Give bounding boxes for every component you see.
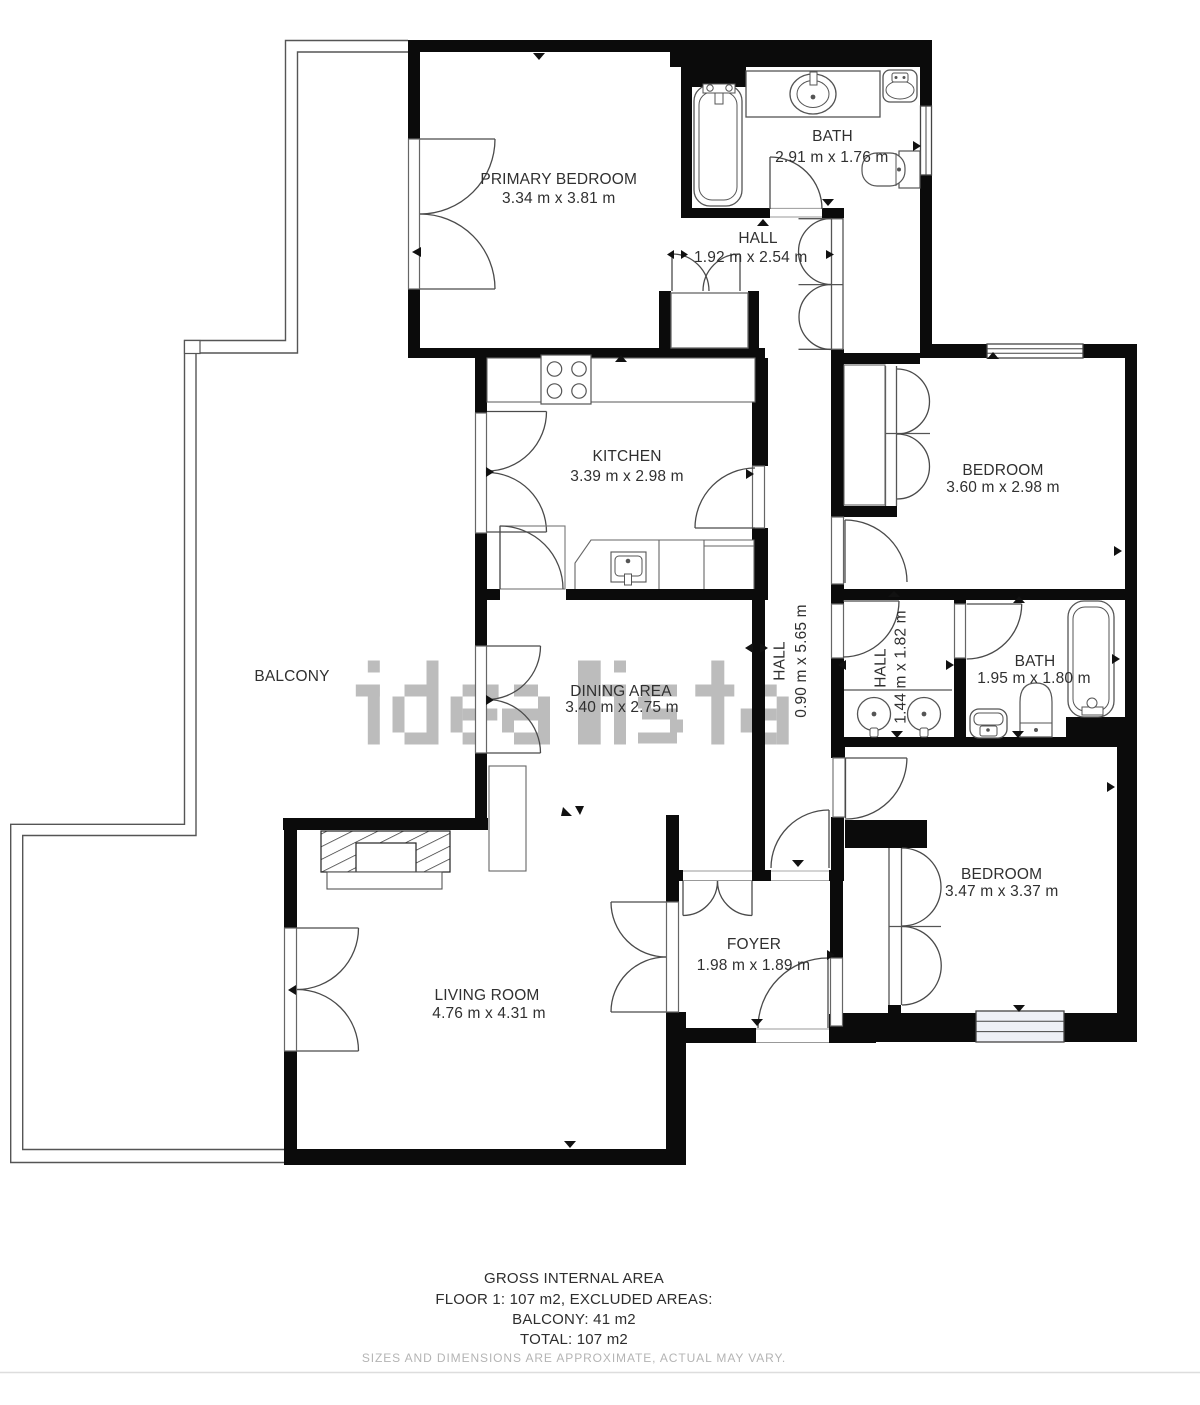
svg-text:3.34 m x 3.81 m: 3.34 m x 3.81 m bbox=[502, 190, 615, 207]
svg-text:HALL: HALL bbox=[873, 648, 890, 688]
svg-text:BEDROOM: BEDROOM bbox=[962, 462, 1043, 479]
svg-text:3.60 m x 2.98 m: 3.60 m x 2.98 m bbox=[946, 479, 1059, 496]
svg-text:3.40 m x 2.75 m: 3.40 m x 2.75 m bbox=[565, 699, 678, 716]
svg-text:BEDROOM: BEDROOM bbox=[961, 866, 1042, 883]
svg-text:1.98 m x 1.89 m: 1.98 m x 1.89 m bbox=[697, 957, 810, 974]
svg-text:PRIMARY BEDROOM: PRIMARY BEDROOM bbox=[480, 171, 637, 188]
svg-text:BALCONY: BALCONY bbox=[254, 668, 329, 685]
svg-text:1.92 m x 2.54 m: 1.92 m x 2.54 m bbox=[694, 249, 807, 266]
svg-text:0.90 m x 5.65 m: 0.90 m x 5.65 m bbox=[793, 604, 810, 717]
svg-text:LIVING ROOM: LIVING ROOM bbox=[435, 987, 540, 1004]
svg-text:HALL: HALL bbox=[772, 641, 789, 681]
svg-text:FLOOR 1: 107 m2, EXCLUDED AREA: FLOOR 1: 107 m2, EXCLUDED AREAS: bbox=[435, 1291, 712, 1308]
svg-text:BALCONY: 41 m2: BALCONY: 41 m2 bbox=[512, 1311, 636, 1328]
svg-text:3.39 m x 2.98 m: 3.39 m x 2.98 m bbox=[570, 468, 683, 485]
svg-text:TOTAL: 107 m2: TOTAL: 107 m2 bbox=[520, 1331, 628, 1348]
svg-text:BATH: BATH bbox=[1015, 653, 1056, 670]
svg-text:1.44 m x 1.82 m: 1.44 m x 1.82 m bbox=[893, 610, 910, 723]
svg-text:3.47 m x 3.37 m: 3.47 m x 3.37 m bbox=[945, 883, 1058, 900]
svg-text:1.95 m x 1.80 m: 1.95 m x 1.80 m bbox=[977, 670, 1090, 687]
svg-text:HALL: HALL bbox=[738, 230, 778, 247]
svg-text:BATH: BATH bbox=[812, 128, 853, 145]
svg-text:KITCHEN: KITCHEN bbox=[592, 448, 661, 465]
svg-text:4.76 m x 4.31 m: 4.76 m x 4.31 m bbox=[432, 1005, 545, 1022]
svg-text:SIZES AND DIMENSIONS ARE APPRO: SIZES AND DIMENSIONS ARE APPROXIMATE, AC… bbox=[362, 1351, 786, 1365]
svg-text:2.91 m x 1.76 m: 2.91 m x 1.76 m bbox=[775, 149, 888, 166]
svg-text:GROSS INTERNAL AREA: GROSS INTERNAL AREA bbox=[484, 1270, 664, 1287]
svg-text:FOYER: FOYER bbox=[727, 936, 781, 953]
svg-text:DINING AREA: DINING AREA bbox=[570, 683, 672, 700]
